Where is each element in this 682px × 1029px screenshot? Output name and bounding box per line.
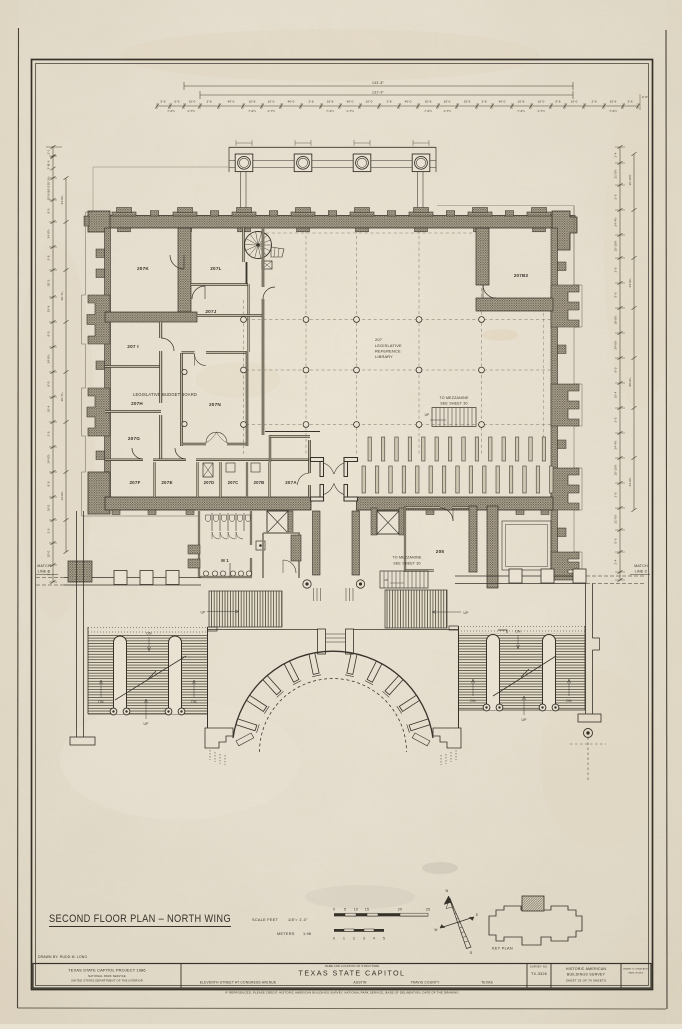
svg-text:19'-0: 19'-0 bbox=[47, 185, 51, 192]
svg-text:3'-6: 3'-6 bbox=[614, 492, 618, 497]
svg-text:207E: 207E bbox=[161, 480, 172, 485]
svg-text:5: 5 bbox=[383, 937, 385, 941]
svg-text:207F: 207F bbox=[129, 480, 140, 485]
svg-text:133'-8": 133'-8" bbox=[372, 81, 385, 85]
svg-text:3'-6: 3'-6 bbox=[614, 267, 618, 272]
svg-text:0: 0 bbox=[333, 937, 335, 941]
svg-text:KEY PLAN: KEY PLAN bbox=[492, 947, 513, 951]
svg-text:4: 4 bbox=[373, 937, 375, 941]
svg-text:DN: DN bbox=[98, 700, 104, 704]
svg-text:W: W bbox=[434, 928, 437, 932]
svg-text:7'-2½: 7'-2½ bbox=[326, 109, 334, 113]
svg-text:40'-0: 40'-0 bbox=[499, 100, 506, 104]
svg-text:2'-0": 2'-0" bbox=[642, 95, 648, 99]
svg-text:METERS: METERS bbox=[277, 932, 295, 936]
svg-text:16'-4: 16'-4 bbox=[614, 391, 618, 398]
svg-text:10: 10 bbox=[354, 908, 358, 912]
svg-text:10'-0: 10'-0 bbox=[268, 100, 275, 104]
svg-text:10'-0: 10'-0 bbox=[538, 100, 545, 104]
svg-text:UP: UP bbox=[201, 611, 207, 615]
svg-text:DN: DN bbox=[146, 632, 152, 636]
svg-text:207G: 207G bbox=[128, 436, 140, 441]
svg-text:34'-0¼: 34'-0¼ bbox=[60, 491, 64, 501]
svg-text:207C: 207C bbox=[228, 480, 239, 485]
svg-text:34'-0¼: 34'-0¼ bbox=[614, 340, 618, 350]
svg-text:1'-7½: 1'-7½ bbox=[346, 109, 354, 113]
svg-text:LINE C: LINE C bbox=[38, 570, 51, 574]
svg-text:207: 207 bbox=[375, 337, 382, 342]
svg-text:MATCH: MATCH bbox=[634, 564, 648, 568]
svg-text:7'-2½: 7'-2½ bbox=[424, 109, 432, 113]
svg-text:S: S bbox=[470, 951, 473, 955]
svg-text:NAME AND LOCATION OF STRUCTURE: NAME AND LOCATION OF STRUCTURE bbox=[325, 964, 379, 968]
svg-text:2'-1: 2'-1 bbox=[47, 149, 51, 154]
svg-text:9'-0: 9'-0 bbox=[47, 381, 51, 386]
svg-text:26'-10½: 26'-10½ bbox=[628, 174, 632, 185]
svg-text:131'-9": 131'-9" bbox=[372, 91, 385, 95]
svg-text:M 1: M 1 bbox=[221, 558, 229, 563]
svg-text:5'-6: 5'-6 bbox=[614, 538, 618, 543]
svg-text:5: 5 bbox=[344, 908, 346, 912]
svg-text:1'-7½: 1'-7½ bbox=[443, 109, 451, 113]
svg-text:9'-0: 9'-0 bbox=[614, 367, 618, 372]
svg-text:24'-4½: 24'-4½ bbox=[614, 217, 618, 227]
svg-text:SHEET 25 OF 79 SHEETS: SHEET 25 OF 79 SHEETS bbox=[566, 979, 606, 983]
svg-text:207N: 207N bbox=[209, 402, 221, 407]
svg-text:3'-8: 3'-8 bbox=[481, 100, 486, 104]
svg-text:40'-0: 40'-0 bbox=[347, 100, 354, 104]
svg-text:19'-0: 19'-0 bbox=[47, 504, 51, 511]
svg-text:207B3: 207B3 bbox=[514, 273, 529, 278]
svg-text:5'-6: 5'-6 bbox=[555, 100, 560, 104]
svg-text:SECOND FLOOR PLAN – NORTH W: SECOND FLOOR PLAN – NORTH WING bbox=[49, 913, 231, 925]
svg-text:3'-6: 3'-6 bbox=[47, 160, 51, 165]
svg-text:1:96: 1:96 bbox=[303, 932, 311, 936]
svg-text:MATCH: MATCH bbox=[37, 564, 51, 568]
svg-text:16'-4: 16'-4 bbox=[47, 405, 51, 412]
svg-text:30'-7¾: 30'-7¾ bbox=[60, 291, 64, 301]
svg-text:UP: UP bbox=[521, 718, 527, 722]
svg-text:10'-0: 10'-0 bbox=[444, 100, 451, 104]
svg-text:34'-0¼: 34'-0¼ bbox=[47, 354, 51, 364]
svg-text:3'-6: 3'-6 bbox=[47, 431, 51, 436]
svg-text:10'-10½: 10'-10½ bbox=[614, 464, 618, 475]
svg-text:207J: 207J bbox=[205, 309, 216, 314]
svg-text:DN: DN bbox=[470, 699, 476, 703]
svg-text:3'-6: 3'-6 bbox=[614, 194, 618, 199]
svg-text:SCALE FEET: SCALE FEET bbox=[252, 918, 279, 922]
svg-text:TO MEZZANINE: TO MEZZANINE bbox=[392, 556, 421, 560]
svg-text:9'-6: 9'-6 bbox=[47, 208, 51, 213]
svg-text:DN: DN bbox=[566, 699, 572, 703]
svg-text:UP: UP bbox=[464, 611, 470, 615]
svg-text:DN: DN bbox=[515, 630, 521, 634]
svg-text:207B: 207B bbox=[254, 480, 265, 485]
svg-text:34'-0¼: 34'-0¼ bbox=[628, 477, 632, 487]
svg-text:40'-0: 40'-0 bbox=[405, 100, 412, 104]
svg-text:E: E bbox=[476, 913, 478, 917]
svg-text:10'-0: 10'-0 bbox=[47, 550, 51, 557]
svg-text:3'-8: 3'-8 bbox=[591, 100, 596, 104]
svg-text:5'-6: 5'-6 bbox=[614, 292, 618, 297]
svg-text:5'-6: 5'-6 bbox=[160, 100, 165, 104]
svg-text:207D: 207D bbox=[204, 480, 215, 485]
svg-text:207A: 207A bbox=[285, 480, 297, 485]
svg-text:20'-3½: 20'-3½ bbox=[47, 176, 51, 185]
svg-text:15: 15 bbox=[365, 908, 369, 912]
svg-text:24'-0½: 24'-0½ bbox=[47, 229, 51, 239]
svg-text:3: 3 bbox=[363, 937, 365, 941]
svg-text:LEGISLATIVE: LEGISLATIVE bbox=[375, 343, 402, 348]
svg-text:HISTORIC AMERICAN: HISTORIC AMERICAN bbox=[566, 967, 606, 971]
svg-text:TEXAS STATE CAPITOL: TEXAS STATE CAPITOL bbox=[299, 969, 406, 978]
svg-text:TRAVIS COUNTY: TRAVIS COUNTY bbox=[410, 981, 440, 985]
svg-text:REFERENCE: REFERENCE bbox=[375, 349, 401, 354]
svg-text:24'-0½: 24'-0½ bbox=[47, 454, 51, 464]
svg-text:7'-2½: 7'-2½ bbox=[609, 109, 617, 113]
svg-text:1/8"= 1'-0": 1/8"= 1'-0" bbox=[288, 918, 308, 922]
svg-text:40'-0: 40'-0 bbox=[288, 100, 295, 104]
svg-text:16'-8: 16'-8 bbox=[425, 100, 432, 104]
svg-text:SURVEY NO.: SURVEY NO. bbox=[530, 965, 548, 969]
svg-text:6'-6: 6'-6 bbox=[174, 100, 179, 104]
svg-text:BUILDINGS SURVEY: BUILDINGS SURVEY bbox=[567, 973, 606, 977]
svg-text:16'-8: 16'-8 bbox=[327, 100, 334, 104]
svg-text:HABS ISSUED: HABS ISSUED bbox=[629, 972, 644, 975]
svg-text:1'-7½: 1'-7½ bbox=[187, 109, 195, 113]
svg-text:3'-8: 3'-8 bbox=[47, 255, 51, 260]
svg-text:ELEVENTH STREET AT CONGRESS: ELEVENTH STREET AT CONGRESS AVENUE bbox=[200, 981, 277, 985]
svg-text:TEXAS: TEXAS bbox=[481, 981, 493, 985]
svg-text:3'-8: 3'-8 bbox=[386, 100, 391, 104]
svg-text:LIBRARY: LIBRARY bbox=[375, 354, 393, 359]
svg-text:34'-0¼: 34'-0¼ bbox=[628, 278, 632, 288]
svg-text:40'-0: 40'-0 bbox=[228, 100, 235, 104]
svg-text:207L: 207L bbox=[210, 266, 221, 271]
svg-text:207H: 207H bbox=[131, 401, 143, 406]
svg-text:16'-8: 16'-8 bbox=[518, 100, 525, 104]
svg-text:10'-0: 10'-0 bbox=[366, 100, 373, 104]
svg-text:7'-2½: 7'-2½ bbox=[167, 109, 175, 113]
svg-text:UP: UP bbox=[384, 578, 389, 582]
svg-text:30'-7¾: 30'-7¾ bbox=[60, 392, 64, 402]
svg-text:1'-7½: 1'-7½ bbox=[267, 109, 275, 113]
svg-text:N: N bbox=[446, 889, 449, 893]
svg-text:21'-0½: 21'-0½ bbox=[614, 169, 618, 179]
svg-text:3'-8: 3'-8 bbox=[206, 100, 211, 104]
svg-text:DRAWN BY: RUDD M. LONG: DRAWN BY: RUDD M. LONG bbox=[38, 955, 87, 959]
svg-text:25: 25 bbox=[426, 908, 430, 912]
svg-text:SEE SHEET 30: SEE SHEET 30 bbox=[393, 562, 421, 566]
svg-text:3'-6: 3'-6 bbox=[627, 100, 632, 104]
svg-text:207K: 207K bbox=[137, 266, 149, 271]
svg-text:20: 20 bbox=[398, 908, 402, 912]
svg-text:20'-3: 20'-3 bbox=[47, 279, 51, 286]
svg-text:UNITED STATES DEPARTMENT OF TH: UNITED STATES DEPARTMENT OF THE INTERIOR bbox=[71, 979, 143, 983]
svg-text:9'-6: 9'-6 bbox=[47, 481, 51, 486]
svg-text:1'-7½: 1'-7½ bbox=[537, 109, 545, 113]
svg-text:7'-2½: 7'-2½ bbox=[248, 109, 256, 113]
svg-text:16'-8: 16'-8 bbox=[249, 100, 256, 104]
svg-text:18'-0¼: 18'-0¼ bbox=[614, 315, 618, 325]
svg-text:9'-0: 9'-0 bbox=[47, 331, 51, 336]
svg-text:10'-0: 10'-0 bbox=[571, 100, 578, 104]
svg-text:10'-10½: 10'-10½ bbox=[614, 240, 618, 251]
svg-text:16'-4: 16'-4 bbox=[47, 305, 51, 312]
svg-text:10'-0: 10'-0 bbox=[189, 100, 196, 104]
svg-text:3'-6: 3'-6 bbox=[47, 528, 51, 533]
svg-text:2: 2 bbox=[353, 937, 355, 941]
svg-text:NATIONAL PARK SERVICE: NATIONAL PARK SERVICE bbox=[88, 974, 126, 978]
svg-text:DRAWN TO STANDARDS: DRAWN TO STANDARDS bbox=[623, 968, 649, 971]
svg-text:15'-6: 15'-6 bbox=[610, 100, 617, 104]
svg-text:AUSTIN: AUSTIN bbox=[353, 981, 367, 985]
svg-text:3'-6: 3'-6 bbox=[614, 417, 618, 422]
svg-text:21'-0½: 21'-0½ bbox=[614, 514, 618, 524]
svg-text:LINE C: LINE C bbox=[635, 570, 648, 574]
svg-text:1: 1 bbox=[343, 937, 345, 941]
svg-text:SEE SHEET 30: SEE SHEET 30 bbox=[440, 402, 468, 406]
svg-text:24'-4½: 24'-4½ bbox=[614, 440, 618, 450]
svg-text:IF REPRODUCED, PLEASE CREDIT:: IF REPRODUCED, PLEASE CREDIT: HISTORIC A… bbox=[225, 991, 459, 995]
svg-text:15'-6: 15'-6 bbox=[464, 100, 471, 104]
svg-text:3'-8: 3'-8 bbox=[308, 100, 313, 104]
svg-text:205: 205 bbox=[436, 549, 445, 554]
svg-text:TO MEZZANINE: TO MEZZANINE bbox=[439, 396, 468, 400]
svg-text:207 I: 207 I bbox=[127, 344, 138, 349]
svg-text:2'-4: 2'-4 bbox=[614, 559, 618, 564]
svg-text:80'-0¾: 80'-0¾ bbox=[628, 377, 632, 387]
svg-text:20'-8½: 20'-8½ bbox=[47, 191, 51, 200]
svg-text:TX-3326: TX-3326 bbox=[531, 972, 547, 976]
svg-text:TEXAS STATE CAPITOL PROJECT 19: TEXAS STATE CAPITOL PROJECT 1986 bbox=[68, 968, 146, 973]
svg-text:34'-0¼: 34'-0¼ bbox=[60, 195, 64, 205]
svg-text:0: 0 bbox=[333, 908, 335, 912]
svg-text:2'-4: 2'-4 bbox=[614, 152, 618, 157]
svg-text:UP: UP bbox=[143, 722, 149, 726]
svg-text:LEGISLATIVE BUDGET BOARD: LEGISLATIVE BUDGET BOARD bbox=[133, 392, 197, 397]
svg-text:7'-2½: 7'-2½ bbox=[517, 109, 525, 113]
svg-text:DN: DN bbox=[191, 700, 197, 704]
svg-text:UP: UP bbox=[425, 413, 430, 417]
